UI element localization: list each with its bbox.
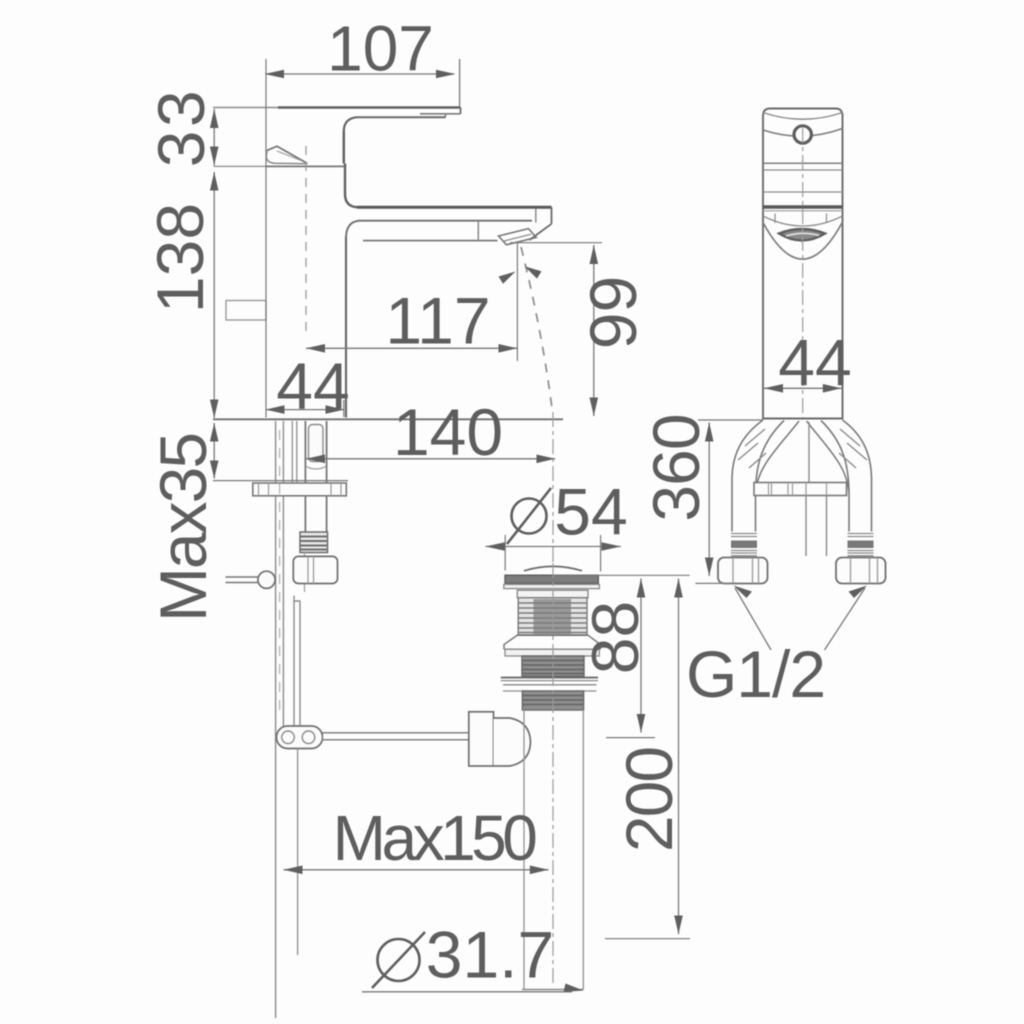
svg-text:33: 33 <box>144 87 218 167</box>
svg-text:107: 107 <box>327 13 434 85</box>
svg-text:Max150: Max150 <box>333 802 537 874</box>
svg-text:G1/2: G1/2 <box>686 637 825 711</box>
svg-text:140: 140 <box>393 395 503 469</box>
svg-text:88: 88 <box>578 601 652 674</box>
svg-text:200: 200 <box>612 748 686 852</box>
svg-text:44: 44 <box>276 349 349 423</box>
svg-text:Max35: Max35 <box>146 434 220 622</box>
svg-text:117: 117 <box>385 284 490 358</box>
svg-text:44: 44 <box>778 326 851 400</box>
svg-text:138: 138 <box>143 203 217 313</box>
svg-text:54: 54 <box>554 475 627 549</box>
svg-text:31.7: 31.7 <box>426 918 554 992</box>
svg-text:360: 360 <box>639 414 713 521</box>
svg-text:99: 99 <box>576 276 650 349</box>
